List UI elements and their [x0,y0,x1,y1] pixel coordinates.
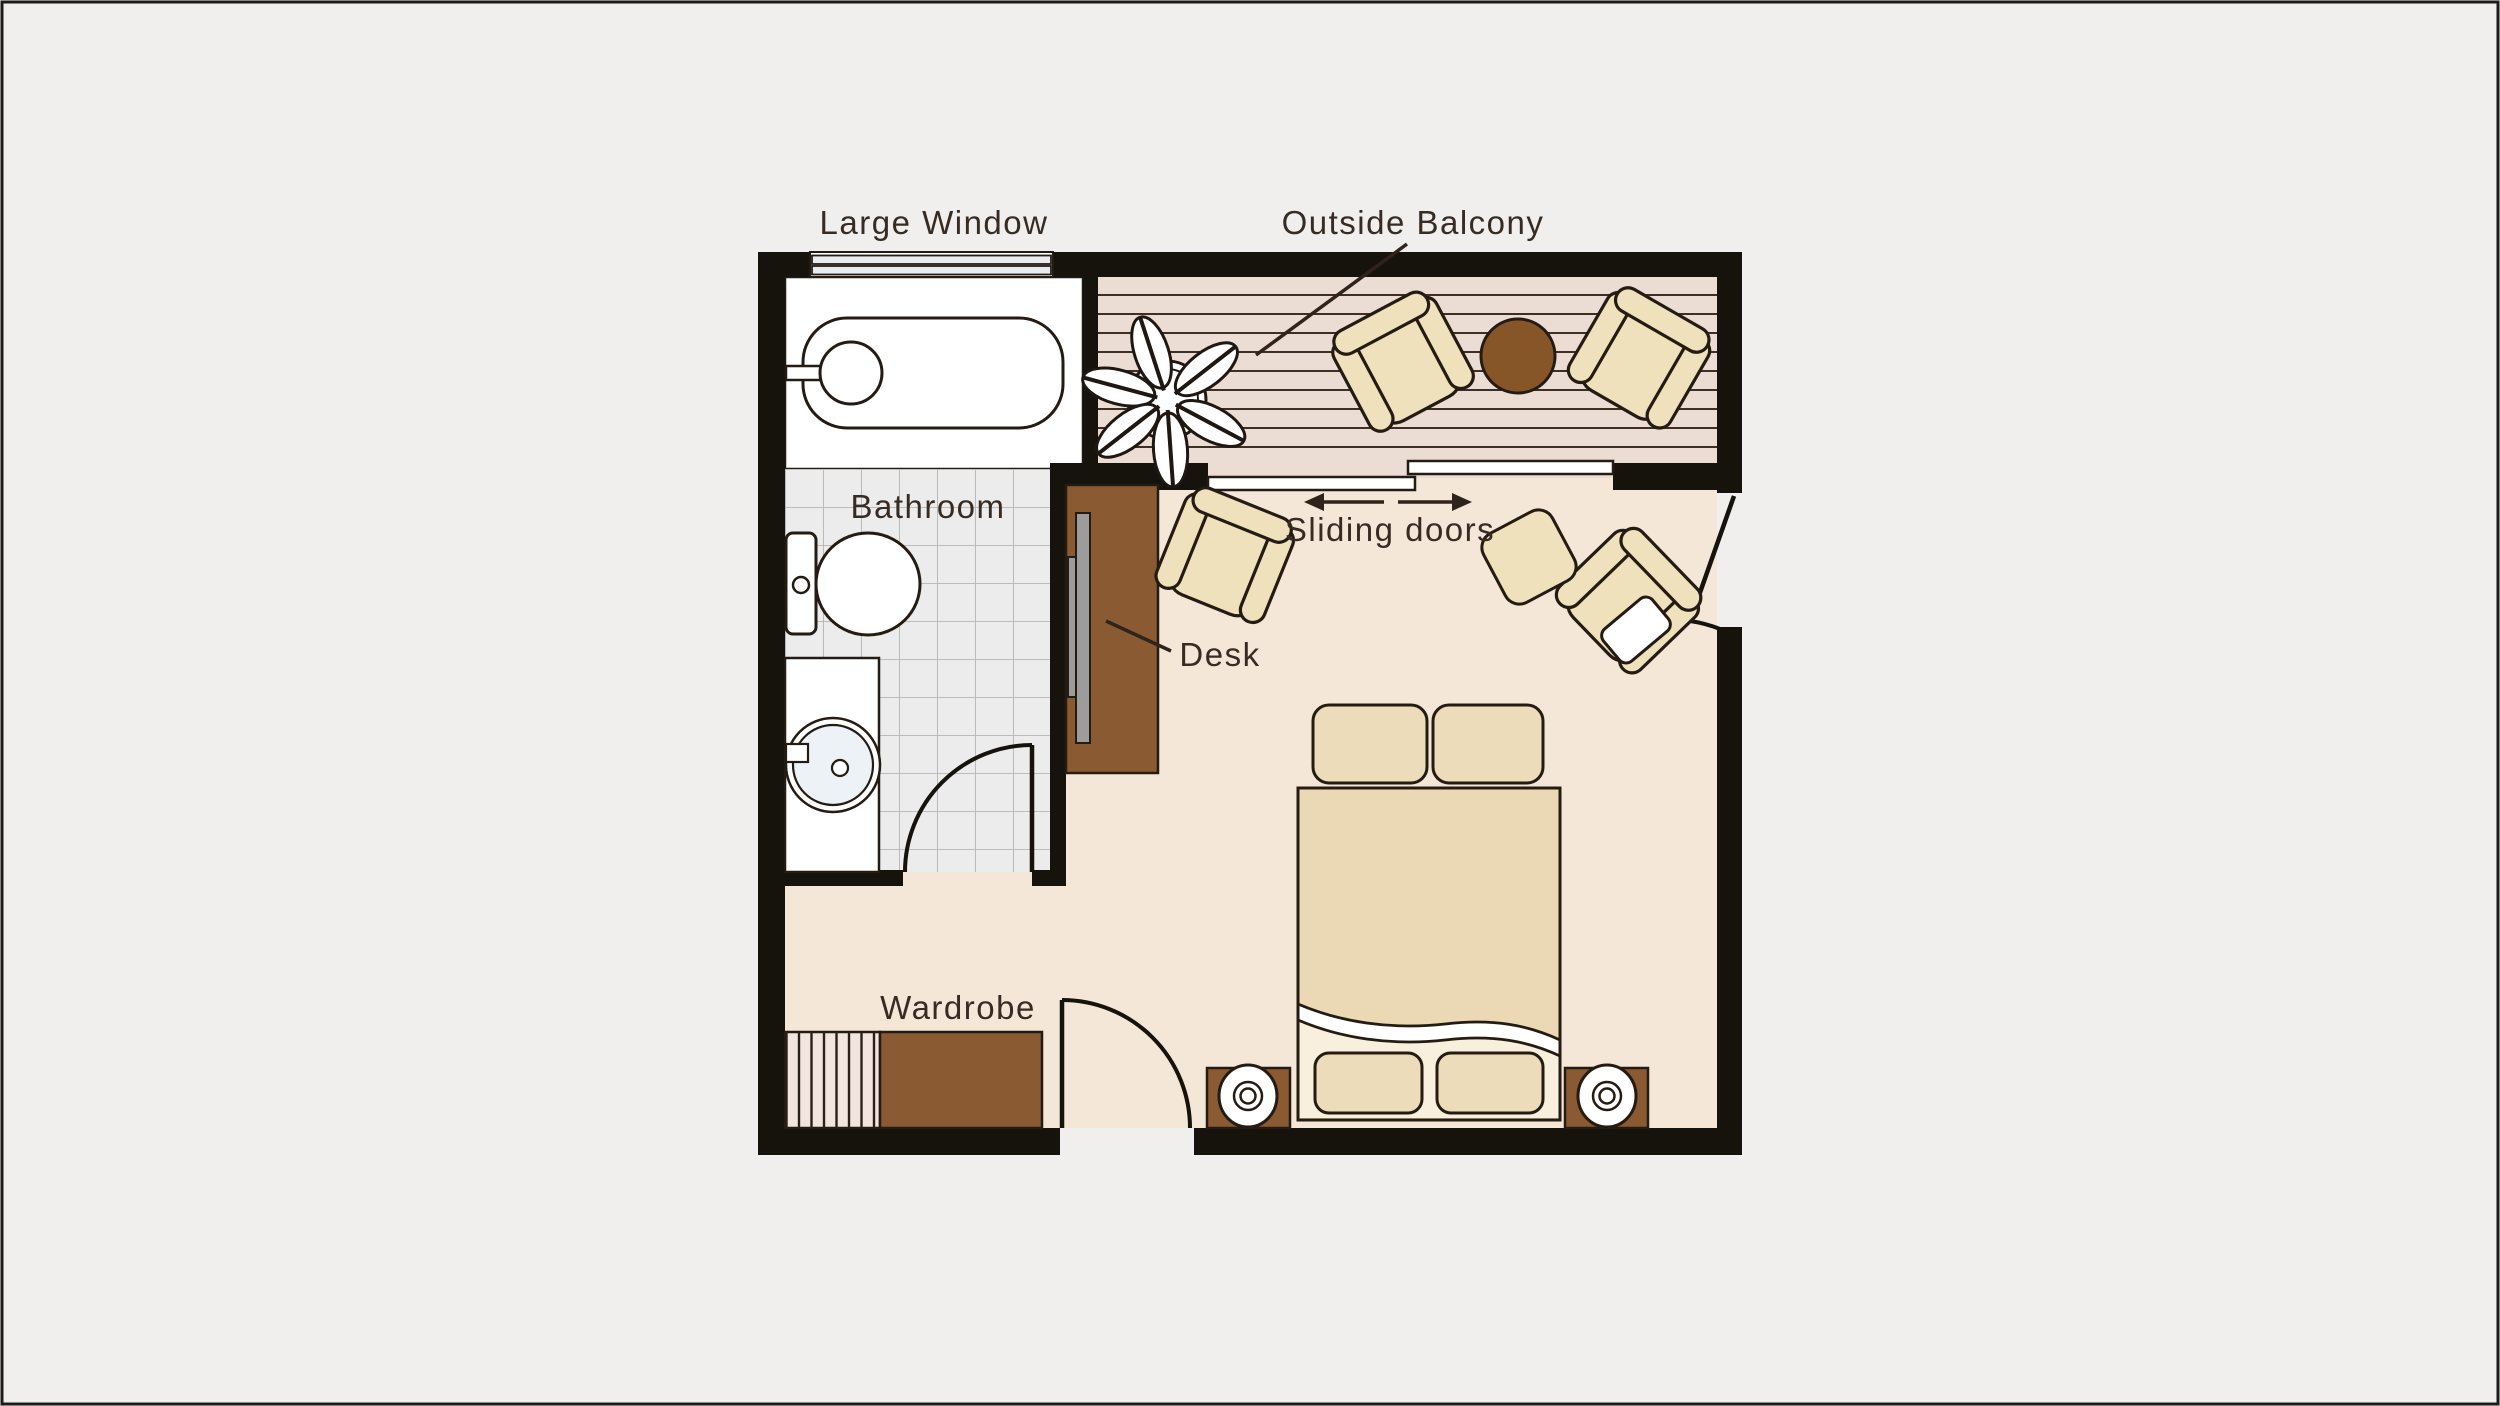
wall-bottom-left [758,1128,1060,1155]
label-outside-balcony: Outside Balcony [1282,204,1545,241]
sink-vanity [785,658,880,872]
sliding-door-panel-left [1208,477,1415,490]
floor-plan-canvas: Large Window Outside Balcony Bathroom Sl… [0,0,2500,1406]
toilet [786,533,920,635]
toilet-flush-button [793,577,809,593]
wardrobe-cabinet [880,1032,1042,1128]
floor-plan-drawing: Large Window Outside Balcony Bathroom Sl… [0,0,2500,1406]
label-wardrobe: Wardrobe [880,989,1036,1026]
label-bathroom: Bathroom [850,488,1005,525]
bathtub-drain [820,342,882,404]
sliding-door-panel-right [1408,461,1613,474]
nightstand-left [1207,1065,1290,1128]
wall-bathroom-bottom-right [1032,870,1066,886]
wall-top-right [1053,252,1742,277]
wall-bottom-right [1194,1128,1742,1155]
wall-balcony-bottom-right [1613,463,1742,490]
desk [1066,485,1158,773]
bed-pillow-left [1313,705,1427,783]
wall-bathroom-right [1050,463,1066,886]
bed-cushion-right [1437,1053,1543,1113]
bathtub [786,318,1063,428]
label-large-window: Large Window [820,204,1049,241]
label-desk: Desk [1179,636,1260,673]
balcony-table [1481,319,1555,393]
wardrobe [785,1032,1042,1128]
label-sliding-doors: Sliding doors [1285,511,1495,548]
wall-right-upper [1717,252,1742,493]
desk-monitor [1076,513,1090,743]
large-window [810,252,1053,277]
lamp-right [1578,1065,1636,1127]
desk-monitor-stand [1068,557,1076,697]
sink-faucet [786,744,808,762]
bed-cushion-left [1315,1053,1422,1113]
lamp-left [1219,1065,1277,1127]
sink-drain [832,760,848,776]
wall-left [758,252,785,1155]
nightstand-right [1565,1065,1648,1128]
wall-right-lower [1717,627,1742,1155]
bed-pillow-right [1433,705,1543,783]
